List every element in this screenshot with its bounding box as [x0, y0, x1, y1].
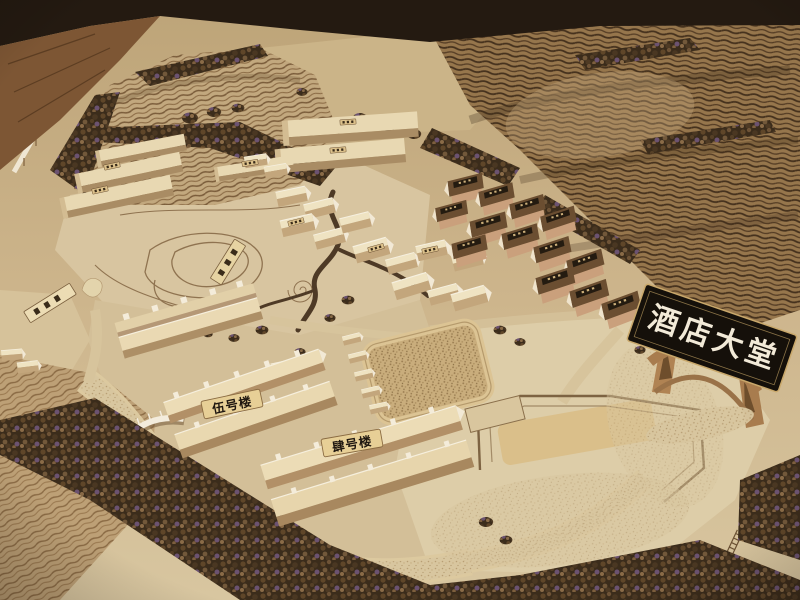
- scale-model-photo: 酒店大堂 伍号楼 肆号楼: [0, 0, 800, 600]
- photo-vignette: [0, 0, 800, 600]
